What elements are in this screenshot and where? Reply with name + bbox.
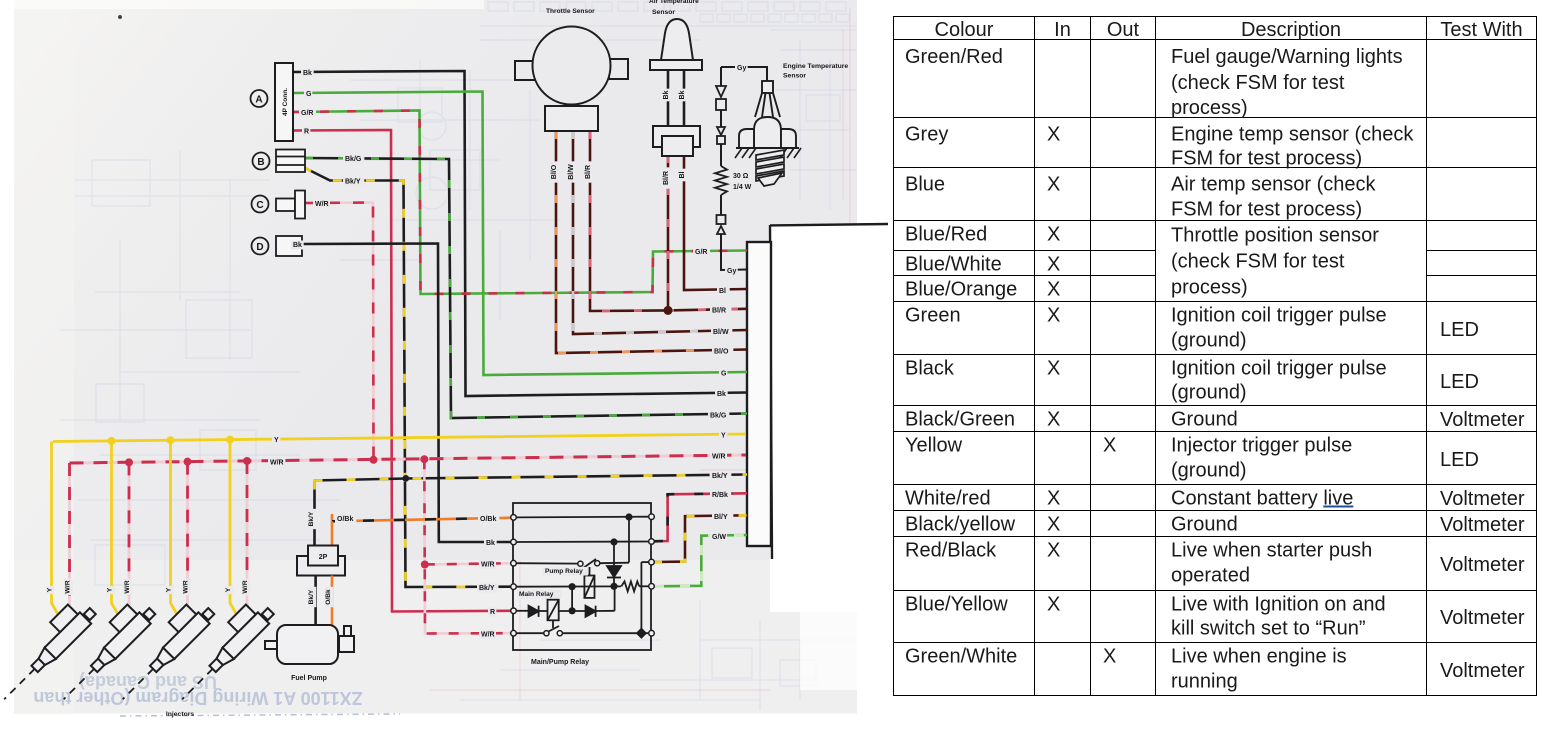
svg-text:B: B [257,157,264,168]
svg-text:Bk/Y: Bk/Y [345,179,361,186]
svg-text:G/R: G/R [301,110,313,117]
svg-text:Sensor: Sensor [652,9,675,16]
svg-text:C: C [256,200,263,211]
svg-text:Bk/Y: Bk/Y [308,589,315,604]
svg-text:D: D [256,242,263,253]
svg-text:Bk: Bk [717,391,726,398]
svg-text:1/4 W: 1/4 W [733,184,752,191]
svg-text:W/R: W/R [65,580,72,593]
svg-text:G/R: G/R [695,249,707,256]
svg-text:Bl: Bl [719,288,726,295]
svg-text:O/Bk: O/Bk [480,516,496,523]
svg-text:Y: Y [274,437,279,444]
svg-text:Bl/W: Bl/W [568,164,575,180]
svg-text:Bk/G: Bk/G [710,413,727,420]
svg-text:R/Bk: R/Bk [712,492,728,499]
svg-text:US and Canada): US and Canada) [79,672,217,692]
svg-text:W/R: W/R [124,580,131,593]
svg-text:Air Temperature: Air Temperature [649,0,699,5]
svg-text:R: R [304,129,309,136]
svg-text:Bl/R: Bl/R [663,171,670,185]
svg-text:Gy: Gy [727,268,736,275]
svg-text:W/R: W/R [481,632,495,639]
svg-text:2P: 2P [319,554,328,561]
svg-text:W/R: W/R [481,562,495,569]
svg-text:Bl/O: Bl/O [714,349,729,356]
svg-text:Bk: Bk [303,70,312,77]
svg-text:Sensor: Sensor [783,73,806,80]
svg-text:Y: Y [47,587,54,592]
svg-text:4P Conn.: 4P Conn. [282,88,289,116]
svg-text:R: R [490,609,495,616]
svg-text:Engine Temperature: Engine Temperature [783,63,848,70]
svg-text:W/R: W/R [183,580,190,593]
svg-text:G/W: G/W [712,534,726,541]
svg-text:Bk/Y: Bk/Y [712,473,728,480]
svg-text:Y: Y [225,587,232,592]
svg-text:G: G [721,371,727,378]
svg-text:Bk/G: Bk/G [345,156,362,163]
svg-text:Y: Y [721,433,726,440]
svg-text:Bk: Bk [293,242,302,249]
svg-text:Bl/R: Bl/R [585,165,592,179]
svg-text:Bk/Y: Bk/Y [308,511,315,526]
svg-text:Gy: Gy [737,65,746,72]
svg-text:Y: Y [107,587,114,592]
svg-text:Bl/W: Bl/W [713,329,729,336]
svg-text:Bl: Bl [679,171,686,178]
svg-text:O/Bk: O/Bk [337,516,353,523]
svg-text:W/R: W/R [270,460,284,467]
svg-text:Pump Relay: Pump Relay [545,568,583,575]
svg-text:O/Bk: O/Bk [325,589,332,605]
svg-text:A: A [255,95,262,106]
svg-text:Y: Y [166,587,173,592]
svg-text:Bk/Y: Bk/Y [479,585,495,592]
svg-text:W/R: W/R [242,580,249,593]
svg-text:Main/Pump Relay: Main/Pump Relay [531,659,589,666]
svg-text:W/R: W/R [315,201,329,208]
svg-text:G: G [306,91,312,98]
svg-text:Bk: Bk [663,90,670,99]
svg-text:Fuel Pump: Fuel Pump [291,675,327,682]
svg-text:30 Ω: 30 Ω [733,173,749,180]
svg-text:Bl/Y: Bl/Y [714,514,728,521]
svg-text:Bk: Bk [486,540,495,547]
svg-text:Main Relay: Main Relay [519,591,554,598]
svg-text:Throttle Sensor: Throttle Sensor [546,8,595,15]
svg-text:Injectors: Injectors [166,711,195,718]
svg-text:Bk: Bk [679,90,686,99]
svg-text:Bl/O: Bl/O [551,164,558,179]
svg-text:Bl/R: Bl/R [712,308,726,315]
svg-text:W/R: W/R [712,454,726,461]
